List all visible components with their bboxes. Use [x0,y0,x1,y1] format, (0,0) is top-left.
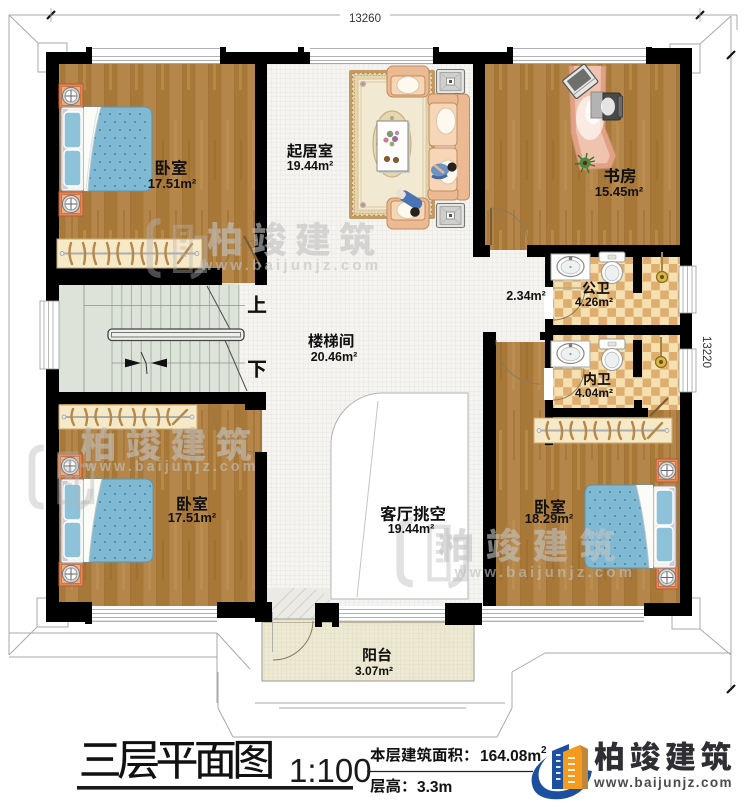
svg-text:19.44m²: 19.44m² [287,159,334,173]
svg-text:18.29m²: 18.29m² [525,511,574,526]
svg-text:19.44m²: 19.44m² [388,522,435,536]
svg-text:3.3m: 3.3m [417,779,452,796]
svg-text:13260: 13260 [349,13,381,25]
svg-text:1:100: 1:100 [289,752,372,789]
svg-text:4.04m²: 4.04m² [575,386,613,400]
svg-text:13220: 13220 [700,336,712,368]
svg-text:www.baijunjz.com: www.baijunjz.com [593,775,733,790]
svg-text:164.08m: 164.08m [480,748,541,765]
svg-text:17.51m²: 17.51m² [148,176,197,191]
svg-text:www.baijunjz.com: www.baijunjz.com [84,459,258,475]
svg-text:20.46m²: 20.46m² [311,350,358,364]
svg-text:www.baijunjz.com: www.baijunjz.com [200,257,382,274]
svg-text:www.baijunjz.com: www.baijunjz.com [454,564,636,581]
svg-text:4.26m²: 4.26m² [575,295,613,309]
svg-text:17.51m²: 17.51m² [168,510,217,525]
svg-text:2: 2 [541,745,547,756]
svg-text:2.34m²: 2.34m² [506,289,546,303]
svg-text:3.07m²: 3.07m² [355,664,393,678]
svg-text:15.45m²: 15.45m² [595,184,644,199]
